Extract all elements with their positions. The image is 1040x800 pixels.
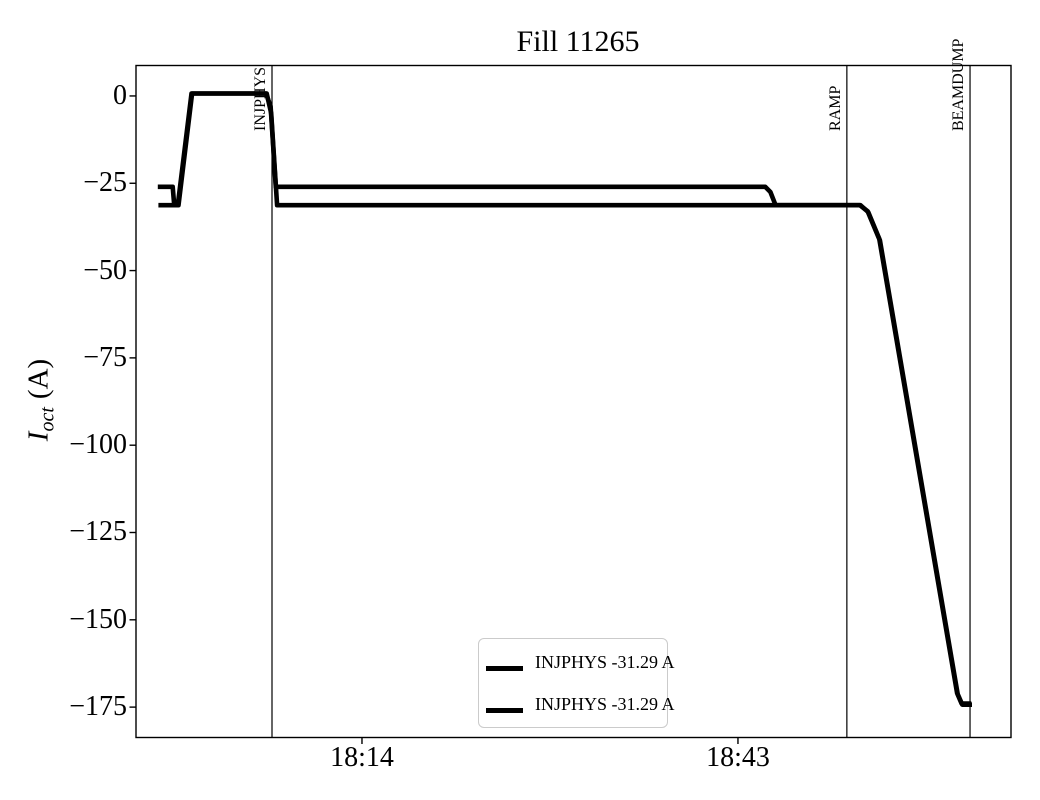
event-label-injphys: INJPHYS: [252, 67, 270, 131]
y-tick-label: −75: [0, 344, 127, 372]
y-tick-label: −100: [0, 431, 127, 459]
x-tick-label: 18:14: [330, 744, 394, 772]
y-tick-label: −25: [0, 169, 127, 197]
y-tick-label: −150: [0, 606, 127, 634]
y-tick-label: −125: [0, 518, 127, 546]
series-line-1: [158, 94, 972, 704]
event-label-ramp: RAMP: [827, 86, 845, 131]
legend-line-swatch: [486, 708, 523, 713]
legend-label: INJPHYS -31.29 A: [535, 652, 675, 672]
event-label-beamdump: BEAMDUMP: [950, 39, 968, 131]
chart-title: Fill 11265: [516, 27, 639, 57]
plot-border: [136, 66, 1011, 738]
legend-label: INJPHYS -31.29 A: [535, 694, 675, 714]
y-tick-label: 0: [0, 82, 127, 110]
legend-entry: INJPHYS -31.29 A: [479, 641, 667, 683]
legend-entry: INJPHYS -31.29 A: [479, 683, 667, 725]
y-tick-label: −175: [0, 693, 127, 721]
y-tick-label: −50: [0, 257, 127, 285]
legend: INJPHYS -31.29 A INJPHYS -31.29 A: [478, 638, 668, 728]
figure-canvas: Fill 11265 Ioct(A) INJPHYS -31.29 A INJP…: [0, 0, 1040, 800]
legend-line-swatch: [486, 666, 523, 671]
x-tick-label: 18:43: [706, 744, 770, 772]
y-axis-label-subscript: oct: [37, 407, 59, 431]
